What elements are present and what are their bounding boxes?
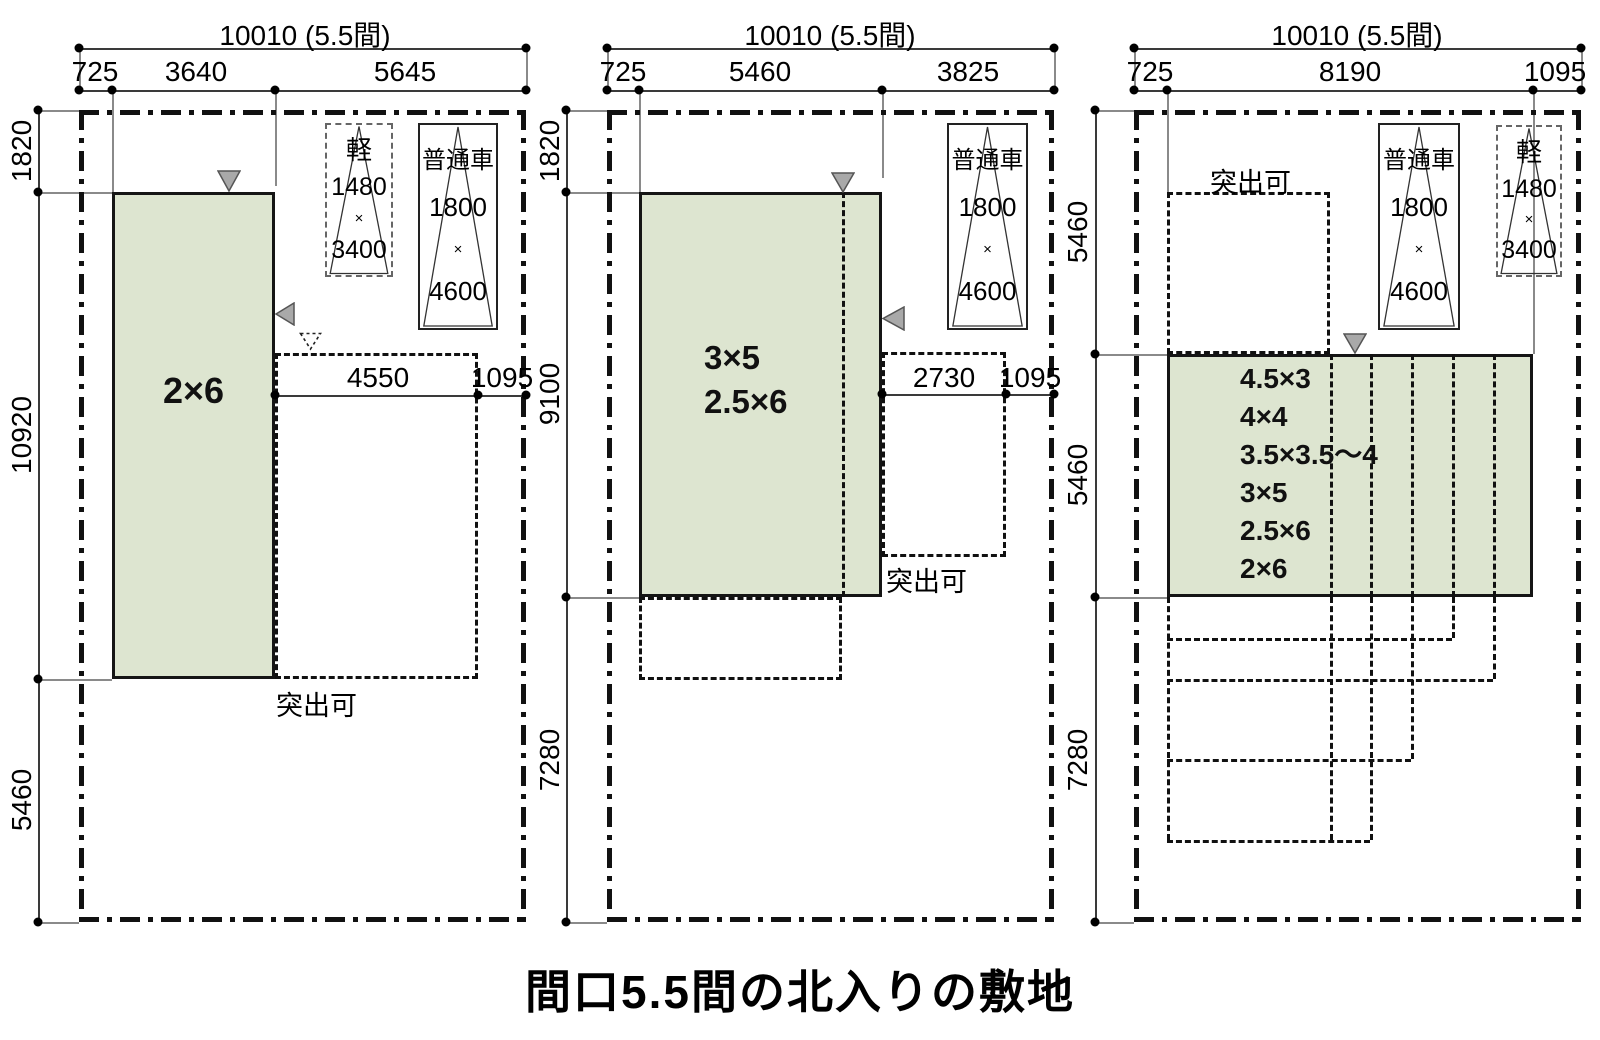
plan-size-label: 2×6	[1240, 550, 1378, 588]
dim-dot	[562, 593, 571, 602]
site-boundary-left	[1134, 110, 1139, 922]
site-boundary-top	[79, 110, 526, 115]
dim-line	[38, 110, 40, 922]
car-width: 1480	[331, 174, 387, 200]
site-plan-diagram: 2×6 10010 (5.5間) 725 3640 5645 1820	[0, 0, 1600, 1040]
dim-segment: 725	[72, 56, 119, 88]
times-sign: ×	[454, 242, 463, 258]
extension-line	[566, 110, 607, 112]
dim-segment: 3640	[165, 56, 227, 88]
times-sign: ×	[983, 242, 992, 258]
car-template-normal: 普通車 1800 × 4600	[947, 123, 1028, 330]
protrude-note: 突出可	[886, 560, 967, 599]
dim-dot	[34, 188, 43, 197]
dim-dot	[1577, 44, 1586, 53]
plan-alt-line	[1370, 597, 1373, 840]
dim-segment: 3825	[937, 56, 999, 88]
plan-size-label: 4×4	[1240, 398, 1378, 436]
car-length: 3400	[1501, 237, 1557, 263]
dim-line	[882, 394, 1054, 396]
entrance-marker-icon	[217, 170, 241, 192]
dim-left: 5460	[1062, 444, 1094, 506]
plan-alt-line	[1330, 597, 1333, 840]
dim-inner: 1095	[471, 362, 533, 394]
extension-line	[112, 90, 114, 192]
extension-line	[38, 192, 112, 194]
plan-size-label: 2.5×6	[1240, 512, 1378, 550]
extension-line	[1095, 110, 1134, 112]
diagram-caption: 間口5.5間の北入りの敷地	[0, 956, 1600, 1022]
site-boundary-right	[1049, 110, 1054, 922]
car-type-label: 普通車	[952, 148, 1024, 173]
dim-dot	[562, 918, 571, 927]
plan-alt-line	[1493, 597, 1496, 679]
site-boundary-top	[607, 110, 1054, 115]
dim-dot	[522, 86, 531, 95]
dim-dot	[522, 44, 531, 53]
extension-line	[566, 922, 607, 924]
dim-left: 5460	[6, 769, 38, 831]
plan-size-label: 3.5×3.5〜4	[1240, 436, 1378, 474]
dim-dot	[1050, 44, 1059, 53]
dim-left: 1820	[534, 120, 566, 182]
dim-total-width: 10010 (5.5間)	[1271, 14, 1442, 54]
plan-split-line	[1411, 354, 1414, 597]
protrusion-zone-outline	[275, 353, 478, 679]
entrance-option-marker-icon	[299, 332, 322, 351]
dim-segment: 5645	[374, 56, 436, 88]
car-template-normal: 普通車 1800 × 4600	[1378, 123, 1460, 330]
site-boundary-bottom	[1134, 917, 1581, 922]
extension-line	[526, 48, 528, 90]
site-boundary-left	[79, 110, 84, 922]
plan-alt-line	[1167, 679, 1493, 682]
extension-line	[38, 679, 112, 681]
protrude-note: 突出可	[276, 684, 357, 723]
dim-segment: 5460	[729, 56, 791, 88]
dim-dot	[878, 86, 887, 95]
times-sign: ×	[1415, 242, 1424, 258]
dim-left: 7280	[1062, 729, 1094, 791]
extension-line	[639, 90, 641, 192]
plan-split-line	[842, 192, 845, 597]
dim-dot	[34, 675, 43, 684]
extension-line	[1095, 354, 1167, 356]
dim-dot	[1091, 918, 1100, 927]
times-sign: ×	[1525, 212, 1534, 228]
dim-line	[1134, 90, 1581, 92]
dim-segment: 725	[1127, 56, 1174, 88]
dim-dot	[75, 44, 84, 53]
dim-line	[566, 110, 568, 922]
extension-line	[1054, 48, 1056, 90]
entrance-marker-icon	[1343, 333, 1367, 354]
plan-size-label: 3×5	[1240, 474, 1378, 512]
dim-dot	[34, 106, 43, 115]
extension-line	[1167, 90, 1169, 192]
car-length: 4600	[429, 278, 487, 305]
extension-line	[275, 90, 277, 186]
car-type-label: 軽	[346, 137, 372, 164]
extension-line	[566, 192, 639, 194]
dim-dot	[562, 188, 571, 197]
car-type-label: 普通車	[1383, 148, 1455, 173]
plan-alt-line	[1167, 840, 1370, 843]
site-boundary-bottom	[79, 917, 526, 922]
dim-segment: 725	[600, 56, 647, 88]
entrance-marker-icon	[882, 306, 905, 331]
protrusion-zone-outline	[639, 597, 842, 680]
dim-dot	[1091, 106, 1100, 115]
car-width: 1480	[1501, 176, 1557, 202]
plan-size-label: 4.5×3	[1240, 360, 1378, 398]
dim-dot	[1091, 350, 1100, 359]
car-length: 3400	[331, 237, 387, 263]
plan-alt-line	[1452, 597, 1455, 638]
times-sign: ×	[355, 211, 364, 227]
car-width: 1800	[429, 194, 487, 221]
dim-dot	[603, 44, 612, 53]
plan-size-label: 3×5	[704, 336, 788, 380]
plan-split-line	[1452, 354, 1455, 597]
dim-left: 10920	[6, 396, 38, 474]
plan-alt-line	[1167, 759, 1411, 762]
extension-line	[1095, 597, 1167, 599]
plan-size-label: 2.5×6	[704, 380, 788, 424]
plan-alt-line	[1167, 638, 1452, 641]
dim-inner: 1095	[999, 362, 1061, 394]
car-template-kei: 軽 1480 × 3400	[1496, 125, 1562, 277]
dim-dot	[562, 106, 571, 115]
dim-left: 1820	[6, 120, 38, 182]
car-width: 1800	[1390, 194, 1448, 221]
car-template-kei: 軽 1480 × 3400	[325, 123, 393, 277]
dim-inner: 4550	[347, 362, 409, 394]
dim-line	[275, 395, 526, 397]
site-boundary-bottom	[607, 917, 1054, 922]
entrance-marker-icon	[831, 172, 855, 193]
dim-segment: 8190	[1319, 56, 1381, 88]
plan-size-label: 2×6	[112, 370, 275, 412]
site-boundary-top	[1134, 110, 1581, 115]
protrusion-zone-outline	[1167, 192, 1330, 354]
car-type-label: 普通車	[422, 148, 494, 173]
plan-alt-line	[1167, 597, 1170, 840]
plan-alt-line	[1411, 597, 1414, 759]
plan-split-line	[1493, 354, 1496, 597]
site-boundary-left	[607, 110, 612, 922]
dim-dot	[34, 918, 43, 927]
dim-left: 9100	[534, 363, 566, 425]
dim-line	[1095, 110, 1097, 922]
dim-left: 7280	[534, 729, 566, 791]
dim-total-width: 10010 (5.5間)	[219, 14, 390, 54]
dim-segment: 1095	[1524, 56, 1586, 88]
extension-line	[882, 90, 884, 178]
dim-total-width: 10010 (5.5間)	[744, 14, 915, 54]
dim-dot	[1130, 44, 1139, 53]
car-length: 4600	[1390, 278, 1448, 305]
site-boundary-right	[1576, 110, 1581, 922]
extension-line	[38, 922, 79, 924]
dim-dot	[878, 390, 887, 399]
dim-dot	[1050, 86, 1059, 95]
entrance-marker-icon	[275, 302, 295, 326]
dim-line	[607, 90, 1054, 92]
extension-line	[1095, 922, 1134, 924]
building-footprint	[112, 192, 275, 679]
extension-line	[38, 110, 79, 112]
dim-inner: 2730	[913, 362, 975, 394]
car-width: 1800	[959, 194, 1017, 221]
dim-dot	[271, 391, 280, 400]
site-boundary-right	[521, 110, 526, 922]
car-template-normal: 普通車 1800 × 4600	[418, 123, 498, 330]
extension-line	[566, 597, 639, 599]
dim-line	[79, 90, 526, 92]
dim-dot	[271, 86, 280, 95]
car-type-label: 軽	[1516, 139, 1542, 166]
protrude-note: 突出可	[1210, 161, 1291, 200]
car-length: 4600	[959, 278, 1017, 305]
dim-left: 5460	[1062, 201, 1094, 263]
dim-dot	[1091, 593, 1100, 602]
